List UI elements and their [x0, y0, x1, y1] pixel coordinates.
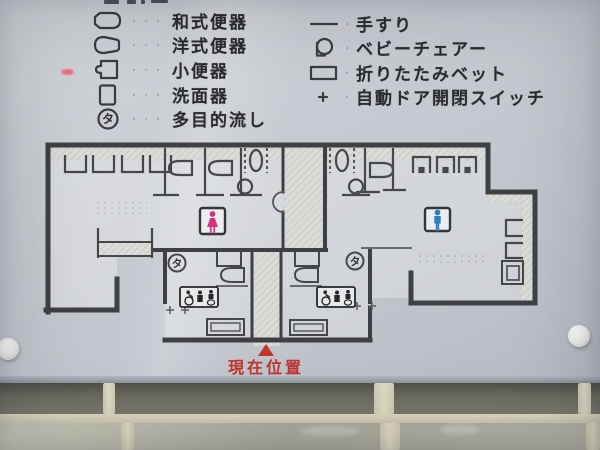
- legend-label: 手すり: [356, 11, 413, 36]
- mounting-bolt-left: [0, 338, 19, 360]
- urinal-icon: [90, 58, 126, 82]
- legend-row-washbasin: 洗面器: [90, 82, 229, 107]
- handrail-icon: [306, 12, 342, 36]
- legend-row-urinal: 小便器: [90, 57, 229, 82]
- red-light-reflection: [61, 69, 74, 75]
- legend-label: 洗面器: [172, 82, 229, 107]
- legend-label: 和式便器: [172, 8, 248, 33]
- folding-bed-icon: [306, 61, 342, 85]
- legend-row-handrail: 手すり: [306, 11, 413, 36]
- western-toilet-icon: [90, 33, 126, 57]
- floor-plan: タ タ 現在位置: [40, 140, 575, 380]
- mens-sign: [425, 208, 450, 231]
- sign-panel: 和式便器 洋式便器 小便器 洗面器 タ: [0, 0, 600, 383]
- urinal-drain: [420, 168, 424, 172]
- braille-dots: [126, 17, 172, 25]
- grout-line: [121, 423, 134, 450]
- legend-label: 自動ドア開閉スイッチ: [356, 84, 546, 109]
- upper-corridor: [284, 148, 323, 248]
- auto-door-switch-icon: [306, 85, 342, 109]
- current-location-label: 現在位置: [228, 358, 304, 377]
- tile-reflection: [440, 425, 480, 435]
- tile-row: [0, 423, 600, 450]
- svg-text:タ: タ: [102, 112, 114, 126]
- braille-dots: [342, 93, 356, 101]
- accessible-plaque: [180, 287, 218, 307]
- bench: [98, 242, 152, 256]
- grout-line: [103, 383, 115, 414]
- baby-chair-icon: [306, 36, 342, 60]
- braille-dots: [126, 91, 172, 99]
- braille-dots: [126, 41, 172, 49]
- multipurpose-sink-symbol: タ: [172, 258, 183, 270]
- panel-bottom-edge: [0, 376, 600, 383]
- braille-dots: [126, 115, 172, 123]
- legend-label: 洋式便器: [172, 32, 248, 57]
- mens-counter-hatch: [327, 148, 486, 160]
- grout-line: [578, 383, 591, 414]
- grout-line: [374, 383, 394, 414]
- legend-label: 折りたたみベット: [356, 60, 508, 85]
- grout-line: [586, 423, 600, 450]
- legend-row-western-toilet: 洋式便器: [90, 32, 248, 57]
- legend-row-auto-door-switch: 自動ドア開閉スイッチ: [306, 84, 546, 109]
- legend-label: ベビーチェアー: [356, 35, 488, 60]
- legend-label: 多目的流し: [172, 106, 267, 131]
- legend-row-baby-chair: ベビーチェアー: [306, 35, 488, 60]
- grout-line: [380, 423, 400, 450]
- entrance-corridor: [253, 251, 280, 346]
- mounting-bolt-right: [568, 325, 590, 347]
- legend-row-squat-toilet: 和式便器: [90, 8, 248, 33]
- squat-toilet-icon: [90, 9, 126, 33]
- braille-dots: [342, 44, 356, 52]
- tile-wall: [0, 383, 600, 450]
- braille-patch: [92, 202, 147, 214]
- grout-line-horizontal: [0, 414, 600, 423]
- braille-patch: [418, 252, 486, 264]
- tile-row-shadow: [0, 383, 600, 414]
- multipurpose-sink-icon: タ: [90, 107, 126, 131]
- womens-sign: [200, 208, 225, 234]
- legend-row-multipurpose-sink: タ 多目的流し: [90, 106, 267, 131]
- legend-label: 小便器: [172, 57, 229, 82]
- accessible-plaque: [317, 287, 355, 307]
- tile-reflection: [300, 426, 360, 436]
- braille-dots: [342, 69, 356, 77]
- urinal-drain: [466, 168, 470, 172]
- braille-dots: [126, 66, 172, 74]
- restroom-sign-photo: 和式便器 洋式便器 小便器 洗面器 タ: [0, 0, 600, 450]
- multipurpose-sink-symbol: タ: [350, 256, 361, 268]
- braille-dots: [342, 20, 356, 28]
- legend-row-folding-bed: 折りたたみベット: [306, 60, 508, 85]
- washbasin-icon: [90, 83, 126, 107]
- urinal-drain: [444, 168, 448, 172]
